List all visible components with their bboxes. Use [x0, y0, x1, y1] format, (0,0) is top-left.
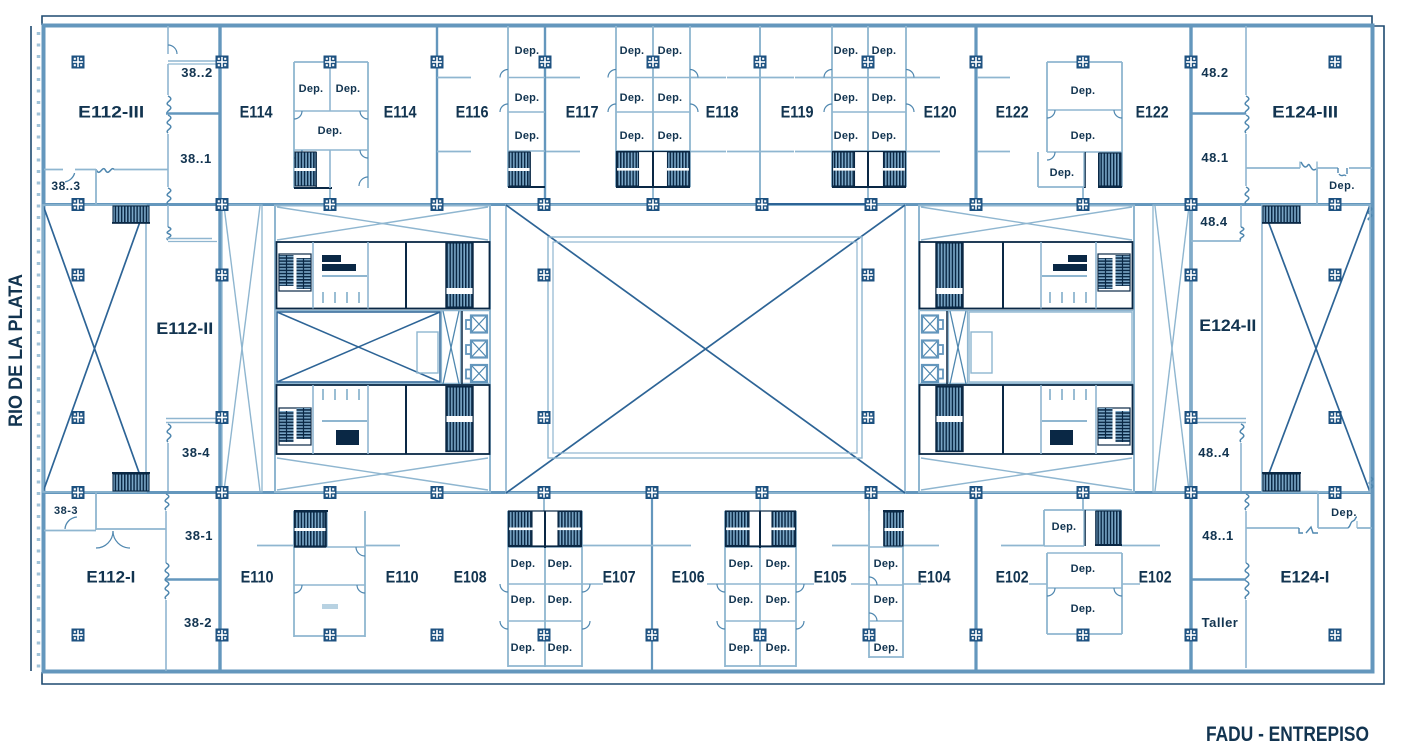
svg-text:E120: E120	[924, 104, 957, 122]
svg-text:E114: E114	[384, 104, 418, 122]
svg-text:38-4: 38-4	[182, 445, 210, 460]
svg-text:Dep.: Dep.	[1071, 563, 1096, 575]
svg-text:Dep.: Dep.	[548, 558, 573, 570]
svg-text:Dep.: Dep.	[872, 45, 897, 57]
svg-text:Dep.: Dep.	[872, 92, 897, 104]
svg-text:Dep.: Dep.	[766, 558, 791, 570]
svg-text:E110: E110	[386, 569, 419, 587]
svg-text:Dep.: Dep.	[511, 642, 536, 654]
svg-text:E119: E119	[781, 104, 814, 122]
svg-text:Dep.: Dep.	[1071, 130, 1096, 142]
svg-text:Dep.: Dep.	[515, 92, 540, 104]
svg-text:RIO DE LA PLATA: RIO DE LA PLATA	[6, 274, 27, 427]
svg-text:Dep.: Dep.	[515, 130, 540, 142]
svg-text:Dep.: Dep.	[872, 130, 897, 142]
svg-text:E112-II: E112-II	[156, 320, 213, 338]
svg-text:E124-I: E124-I	[1280, 569, 1329, 587]
svg-text:Dep.: Dep.	[1050, 167, 1075, 179]
svg-text:Dep.: Dep.	[729, 594, 754, 606]
svg-text:E114: E114	[240, 104, 274, 122]
svg-text:Dep.: Dep.	[874, 558, 899, 570]
svg-text:E104: E104	[918, 569, 952, 587]
svg-text:E106: E106	[672, 569, 705, 587]
svg-text:Dep.: Dep.	[548, 642, 573, 654]
svg-text:Dep.: Dep.	[729, 558, 754, 570]
svg-text:Dep.: Dep.	[299, 83, 324, 95]
svg-text:Dep.: Dep.	[1331, 507, 1357, 519]
svg-text:Dep.: Dep.	[834, 130, 859, 142]
svg-text:E107: E107	[603, 569, 636, 587]
svg-text:Dep.: Dep.	[834, 45, 859, 57]
svg-text:Taller: Taller	[1202, 615, 1239, 630]
svg-text:Dep.: Dep.	[511, 594, 536, 606]
svg-text:38-1: 38-1	[185, 528, 213, 543]
svg-text:Dep.: Dep.	[766, 594, 791, 606]
svg-text:48.1: 48.1	[1201, 150, 1228, 165]
svg-text:E118: E118	[706, 104, 739, 122]
svg-text:Dep.: Dep.	[511, 558, 536, 570]
svg-text:E110: E110	[241, 569, 274, 587]
svg-text:Dep.: Dep.	[658, 45, 683, 57]
svg-text:48.4: 48.4	[1200, 214, 1228, 229]
svg-text:Dep.: Dep.	[874, 642, 899, 654]
svg-text:Dep.: Dep.	[766, 642, 791, 654]
svg-text:E124-II: E124-II	[1199, 317, 1256, 335]
svg-text:E112-I: E112-I	[86, 569, 135, 587]
svg-text:38..1: 38..1	[180, 151, 211, 166]
svg-text:E105: E105	[814, 569, 847, 587]
svg-text:Dep.: Dep.	[620, 92, 645, 104]
svg-text:48..4: 48..4	[1198, 445, 1230, 460]
svg-text:Dep.: Dep.	[515, 45, 540, 57]
svg-text:E108: E108	[454, 569, 487, 587]
svg-text:E102: E102	[1139, 569, 1172, 587]
svg-text:Dep.: Dep.	[834, 92, 859, 104]
svg-text:Dep.: Dep.	[1071, 603, 1096, 615]
svg-text:Dep.: Dep.	[874, 594, 899, 606]
svg-text:E124-III: E124-III	[1272, 104, 1338, 122]
svg-text:38-3: 38-3	[54, 505, 78, 517]
svg-text:Dep.: Dep.	[658, 92, 683, 104]
svg-text:38-2: 38-2	[184, 615, 212, 630]
svg-text:Dep.: Dep.	[1071, 85, 1096, 97]
svg-text:Dep.: Dep.	[1329, 180, 1355, 192]
svg-text:Dep.: Dep.	[336, 83, 361, 95]
svg-text:E122: E122	[996, 104, 1029, 122]
svg-text:Dep.: Dep.	[318, 125, 343, 137]
svg-text:Dep.: Dep.	[729, 642, 754, 654]
svg-text:E117: E117	[566, 104, 599, 122]
svg-text:E116: E116	[456, 104, 489, 122]
svg-text:E102: E102	[996, 569, 1029, 587]
svg-text:48..1: 48..1	[1202, 528, 1233, 543]
svg-text:Dep.: Dep.	[620, 45, 645, 57]
svg-text:48.2: 48.2	[1201, 65, 1228, 80]
svg-text:Dep.: Dep.	[658, 130, 683, 142]
svg-text:E122: E122	[1136, 104, 1169, 122]
svg-text:Dep.: Dep.	[1052, 521, 1077, 533]
svg-text:Dep.: Dep.	[620, 130, 645, 142]
svg-text:Dep.: Dep.	[548, 594, 573, 606]
svg-text:FADU - ENTREPISO: FADU - ENTREPISO	[1206, 722, 1369, 746]
svg-text:E112-III: E112-III	[78, 104, 144, 122]
svg-text:38..2: 38..2	[181, 65, 212, 80]
